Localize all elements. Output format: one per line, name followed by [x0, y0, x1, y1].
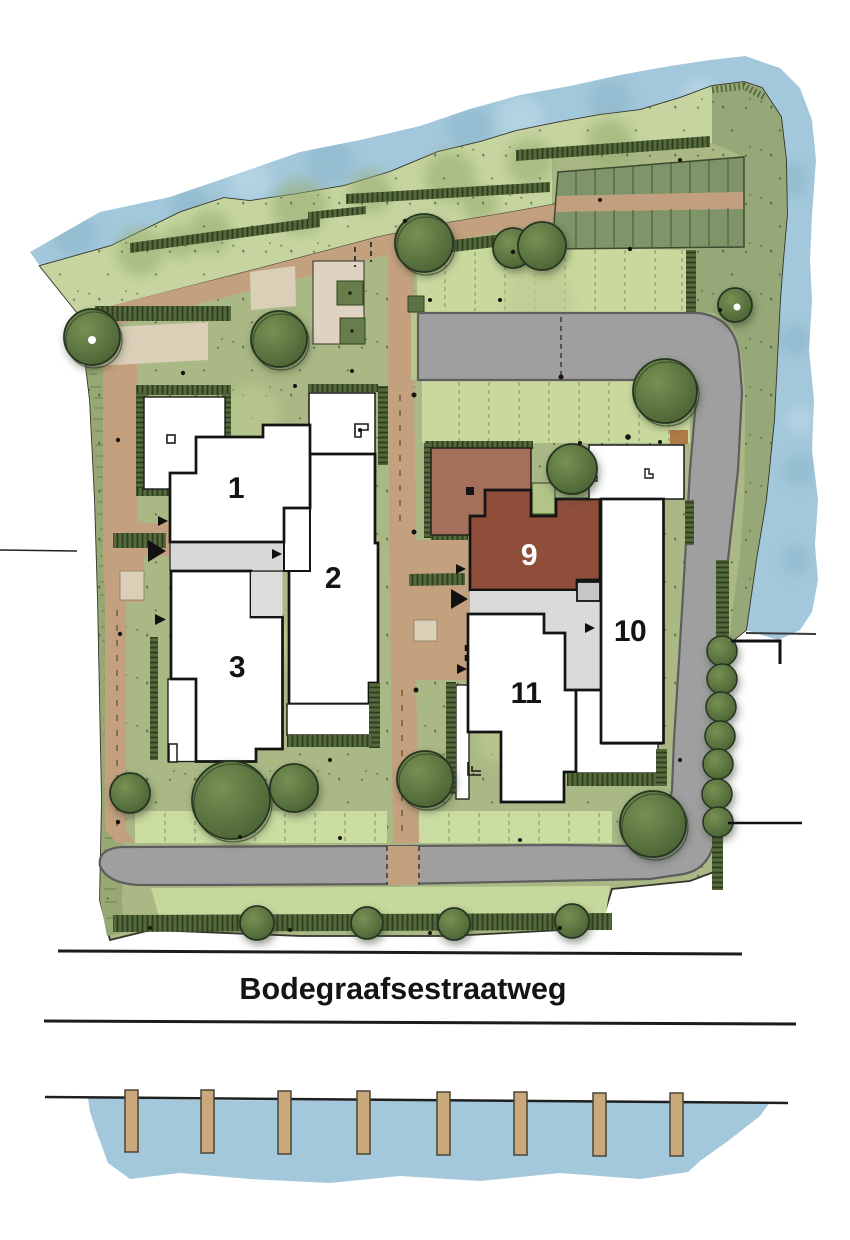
- svg-text:10: 10: [614, 615, 646, 648]
- svg-text:3: 3: [229, 651, 245, 684]
- svg-text:Bodegraafsestraatweg: Bodegraafsestraatweg: [239, 972, 566, 1006]
- svg-text:2: 2: [325, 562, 341, 595]
- svg-text:1: 1: [228, 472, 244, 505]
- svg-text:9: 9: [521, 539, 537, 572]
- svg-text:11: 11: [511, 677, 542, 710]
